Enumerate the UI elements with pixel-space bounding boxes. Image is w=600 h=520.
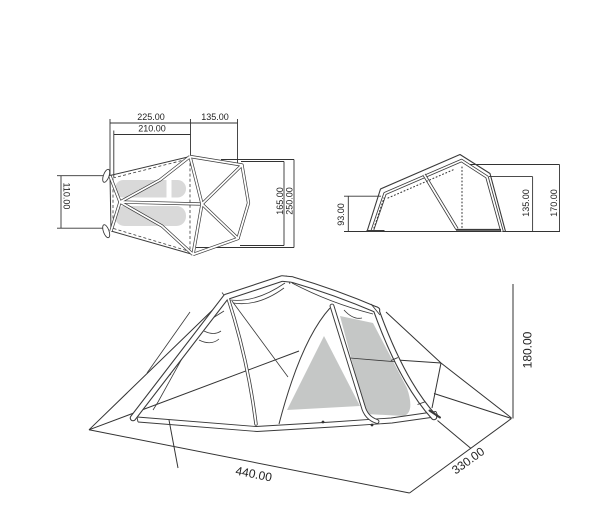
svg-text:135.00: 135.00 — [201, 112, 229, 122]
svg-text:180.00: 180.00 — [521, 331, 535, 368]
svg-text:110.00: 110.00 — [61, 183, 71, 210]
svg-text:210.00: 210.00 — [138, 124, 166, 134]
svg-text:250.00: 250.00 — [284, 187, 294, 215]
svg-text:135.00: 135.00 — [521, 189, 531, 217]
svg-text:170.00: 170.00 — [549, 189, 559, 217]
svg-text:225.00: 225.00 — [137, 112, 165, 122]
svg-text:93.00: 93.00 — [336, 203, 346, 226]
